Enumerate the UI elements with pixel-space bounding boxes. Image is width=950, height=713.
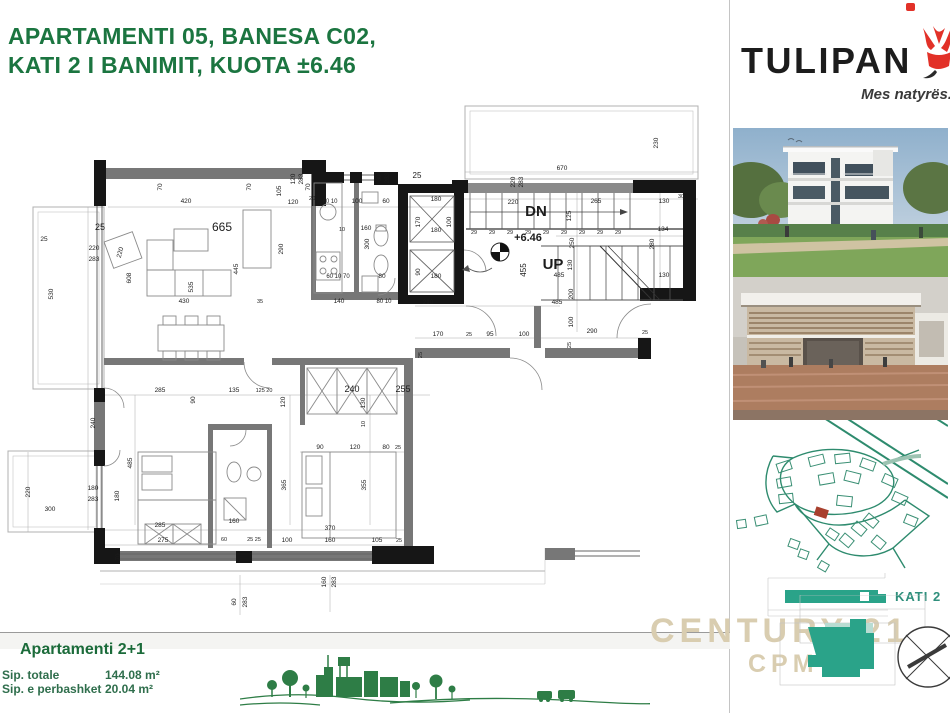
info-value-total: 144.08 m² xyxy=(105,668,160,682)
svg-text:80 10: 80 10 xyxy=(376,299,392,305)
svg-text:285: 285 xyxy=(155,522,166,529)
svg-text:60 10: 60 10 xyxy=(322,199,338,205)
svg-text:455: 455 xyxy=(519,263,528,277)
svg-text:535: 535 xyxy=(188,281,195,292)
windows xyxy=(97,175,640,559)
svg-text:29: 29 xyxy=(543,230,549,236)
apartment-type-heading: Apartamenti 2+1 xyxy=(20,641,145,659)
svg-text:120: 120 xyxy=(290,173,297,184)
brand-logo-text: TULIPAN xyxy=(741,40,912,82)
svg-text:370: 370 xyxy=(325,525,336,532)
svg-text:60: 60 xyxy=(376,174,383,182)
svg-text:105: 105 xyxy=(276,185,283,196)
svg-text:25: 25 xyxy=(413,171,422,180)
svg-text:530: 530 xyxy=(48,288,55,299)
rendering-photo-commercial xyxy=(733,277,948,418)
info-value-shared: 20.04 m² xyxy=(105,682,153,696)
svg-text:210: 210 xyxy=(423,299,434,306)
svg-text:95: 95 xyxy=(486,331,494,338)
svg-text:29: 29 xyxy=(507,230,513,236)
svg-text:70: 70 xyxy=(246,183,253,191)
svg-text:100: 100 xyxy=(282,537,293,544)
svg-text:80: 80 xyxy=(378,273,386,280)
svg-text:60 10 70: 60 10 70 xyxy=(326,274,350,280)
svg-text:283: 283 xyxy=(89,256,100,263)
svg-text:29: 29 xyxy=(489,230,495,236)
svg-text:125 20: 125 20 xyxy=(256,388,273,394)
svg-text:220: 220 xyxy=(89,245,100,252)
svg-text:300: 300 xyxy=(45,506,56,513)
svg-text:30: 30 xyxy=(678,194,684,200)
svg-text:35: 35 xyxy=(257,299,263,305)
svg-text:120: 120 xyxy=(280,396,287,407)
svg-text:134: 134 xyxy=(658,226,669,233)
svg-text:100: 100 xyxy=(352,198,363,205)
svg-text:485: 485 xyxy=(554,272,565,279)
svg-text:670: 670 xyxy=(557,165,568,172)
svg-text:220: 220 xyxy=(116,246,126,259)
svg-text:90: 90 xyxy=(316,444,324,451)
svg-text:25: 25 xyxy=(40,236,48,243)
info-row-shared: Sip. e perbashket 20.04 m² xyxy=(0,682,240,695)
svg-text:160: 160 xyxy=(229,518,240,525)
svg-text:90: 90 xyxy=(415,268,422,276)
svg-text:60: 60 xyxy=(231,598,238,606)
svg-text:25: 25 xyxy=(95,222,105,232)
keyplan-building-shape xyxy=(808,619,874,677)
svg-text:100: 100 xyxy=(519,331,530,338)
svg-text:60: 60 xyxy=(382,198,390,205)
svg-text:220: 220 xyxy=(25,486,32,497)
svg-text:120: 120 xyxy=(288,199,299,206)
svg-text:665: 665 xyxy=(212,220,232,234)
info-label-shared: Sip. e perbashket xyxy=(2,682,101,696)
svg-text:DN: DN xyxy=(525,203,547,220)
floor-plan-drawing: 6702302202832204207070701051202831202060… xyxy=(0,95,730,635)
svg-text:160: 160 xyxy=(361,225,372,232)
svg-text:170: 170 xyxy=(415,216,422,227)
svg-text:29: 29 xyxy=(561,230,567,236)
svg-text:130: 130 xyxy=(659,198,670,205)
svg-text:220: 220 xyxy=(508,199,519,206)
svg-text:125: 125 xyxy=(566,210,573,221)
svg-text:10: 10 xyxy=(339,227,345,233)
svg-text:255: 255 xyxy=(395,384,410,394)
svg-text:230: 230 xyxy=(653,137,660,148)
svg-text:265: 265 xyxy=(591,198,602,205)
svg-text:250: 250 xyxy=(569,237,576,248)
svg-text:25: 25 xyxy=(396,538,402,544)
svg-text:420: 420 xyxy=(181,198,192,205)
svg-text:355: 355 xyxy=(361,479,368,490)
svg-text:180: 180 xyxy=(431,273,442,280)
page-title: APARTAMENTI 05, BANESA C02,KATI 2 I BANI… xyxy=(8,22,376,81)
svg-text:290: 290 xyxy=(587,328,598,335)
svg-text:25: 25 xyxy=(466,332,472,338)
tulip-icon xyxy=(921,26,950,80)
svg-text:170: 170 xyxy=(433,331,444,338)
svg-text:283: 283 xyxy=(384,172,391,183)
svg-text:300: 300 xyxy=(364,238,371,249)
svg-text:200: 200 xyxy=(568,288,575,299)
svg-text:25: 25 xyxy=(418,352,424,358)
svg-text:135: 135 xyxy=(229,387,240,394)
info-label-total: Sip. totale xyxy=(2,668,59,682)
svg-text:10: 10 xyxy=(361,421,367,427)
svg-text:80: 80 xyxy=(382,444,390,451)
svg-text:283: 283 xyxy=(242,596,249,607)
svg-text:20: 20 xyxy=(309,196,315,202)
svg-text:130: 130 xyxy=(567,259,574,270)
svg-text:160: 160 xyxy=(325,537,336,544)
info-row-total: Sip. totale 144.08 m² xyxy=(0,668,240,681)
svg-text:283: 283 xyxy=(298,173,305,184)
svg-text:275: 275 xyxy=(158,537,169,544)
svg-text:283: 283 xyxy=(331,576,338,587)
svg-text:160: 160 xyxy=(321,576,328,587)
svg-text:70: 70 xyxy=(115,553,122,561)
floorplan-sheet: APARTAMENTI 05, BANESA C02,KATI 2 I BANI… xyxy=(0,0,950,713)
svg-text:240: 240 xyxy=(344,384,359,394)
svg-text:70: 70 xyxy=(157,183,164,191)
svg-text:180: 180 xyxy=(431,227,442,234)
svg-text:240: 240 xyxy=(90,417,97,428)
brand-tagline: Mes natyrës. xyxy=(780,86,950,103)
svg-text:29: 29 xyxy=(615,230,621,236)
svg-text:100: 100 xyxy=(446,216,453,227)
svg-text:UP: UP xyxy=(543,256,564,273)
svg-text:430: 430 xyxy=(179,298,190,305)
svg-text:105: 105 xyxy=(372,537,383,544)
svg-text:90: 90 xyxy=(190,396,197,404)
svg-text:25: 25 xyxy=(567,342,573,348)
svg-text:445: 445 xyxy=(233,263,240,274)
title-line1: APARTAMENTI 05, BANESA C02, xyxy=(8,23,376,49)
svg-text:180: 180 xyxy=(88,485,99,492)
svg-text:60: 60 xyxy=(221,537,227,543)
svg-text:29: 29 xyxy=(525,230,531,236)
svg-text:485: 485 xyxy=(552,299,563,306)
svg-text:283: 283 xyxy=(88,496,99,503)
svg-text:280: 280 xyxy=(649,238,656,249)
svg-text:608: 608 xyxy=(126,272,133,283)
svg-text:130: 130 xyxy=(659,272,670,279)
photo-separator-strip xyxy=(733,410,948,420)
svg-text:283: 283 xyxy=(518,176,525,187)
skyline-illustration xyxy=(240,645,650,710)
svg-text:25: 25 xyxy=(395,445,401,451)
svg-text:220: 220 xyxy=(510,176,517,187)
svg-text:290: 290 xyxy=(278,243,285,254)
red-corner-mark xyxy=(906,3,915,11)
svg-text:70: 70 xyxy=(305,183,312,191)
svg-text:130: 130 xyxy=(360,397,367,408)
svg-text:180: 180 xyxy=(114,490,121,501)
svg-text:25: 25 xyxy=(642,330,648,336)
svg-text:25 25: 25 25 xyxy=(247,537,261,543)
svg-text:180: 180 xyxy=(431,196,442,203)
svg-text:120: 120 xyxy=(350,444,361,451)
svg-text:100: 100 xyxy=(568,316,575,327)
compass-icon xyxy=(898,627,950,687)
svg-text:285: 285 xyxy=(155,387,166,394)
svg-text:29: 29 xyxy=(579,230,585,236)
svg-text:485: 485 xyxy=(127,457,134,468)
svg-text:29: 29 xyxy=(471,230,477,236)
dimension-lines xyxy=(28,172,698,615)
site-map xyxy=(733,420,948,585)
title-line2: KATI 2 I BANIMIT, KUOTA ±6.46 xyxy=(8,52,356,78)
svg-text:365: 365 xyxy=(281,479,288,490)
rendering-photo-villa xyxy=(733,128,948,277)
svg-text:140: 140 xyxy=(334,298,345,305)
svg-text:29: 29 xyxy=(597,230,603,236)
